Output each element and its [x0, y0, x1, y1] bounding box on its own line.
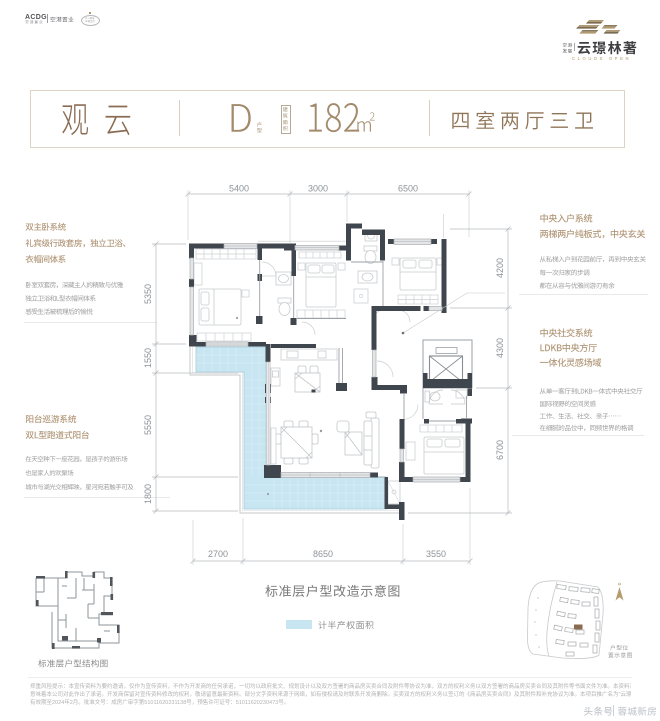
- svg-text:6700: 6700: [495, 440, 505, 460]
- svg-text:1800: 1800: [143, 484, 153, 504]
- svg-text:4300: 4300: [495, 338, 505, 358]
- svg-text:3000: 3000: [308, 184, 328, 194]
- svg-text:5400: 5400: [229, 184, 249, 194]
- svg-text:3550: 3550: [426, 549, 446, 559]
- svg-text:4200: 4200: [495, 258, 505, 278]
- svg-text:6500: 6500: [398, 184, 418, 194]
- svg-text:2700: 2700: [208, 549, 228, 559]
- svg-text:1550: 1550: [143, 348, 153, 368]
- svg-text:5350: 5350: [143, 284, 153, 304]
- svg-text:8650: 8650: [313, 549, 333, 559]
- svg-text:5550: 5550: [143, 415, 153, 435]
